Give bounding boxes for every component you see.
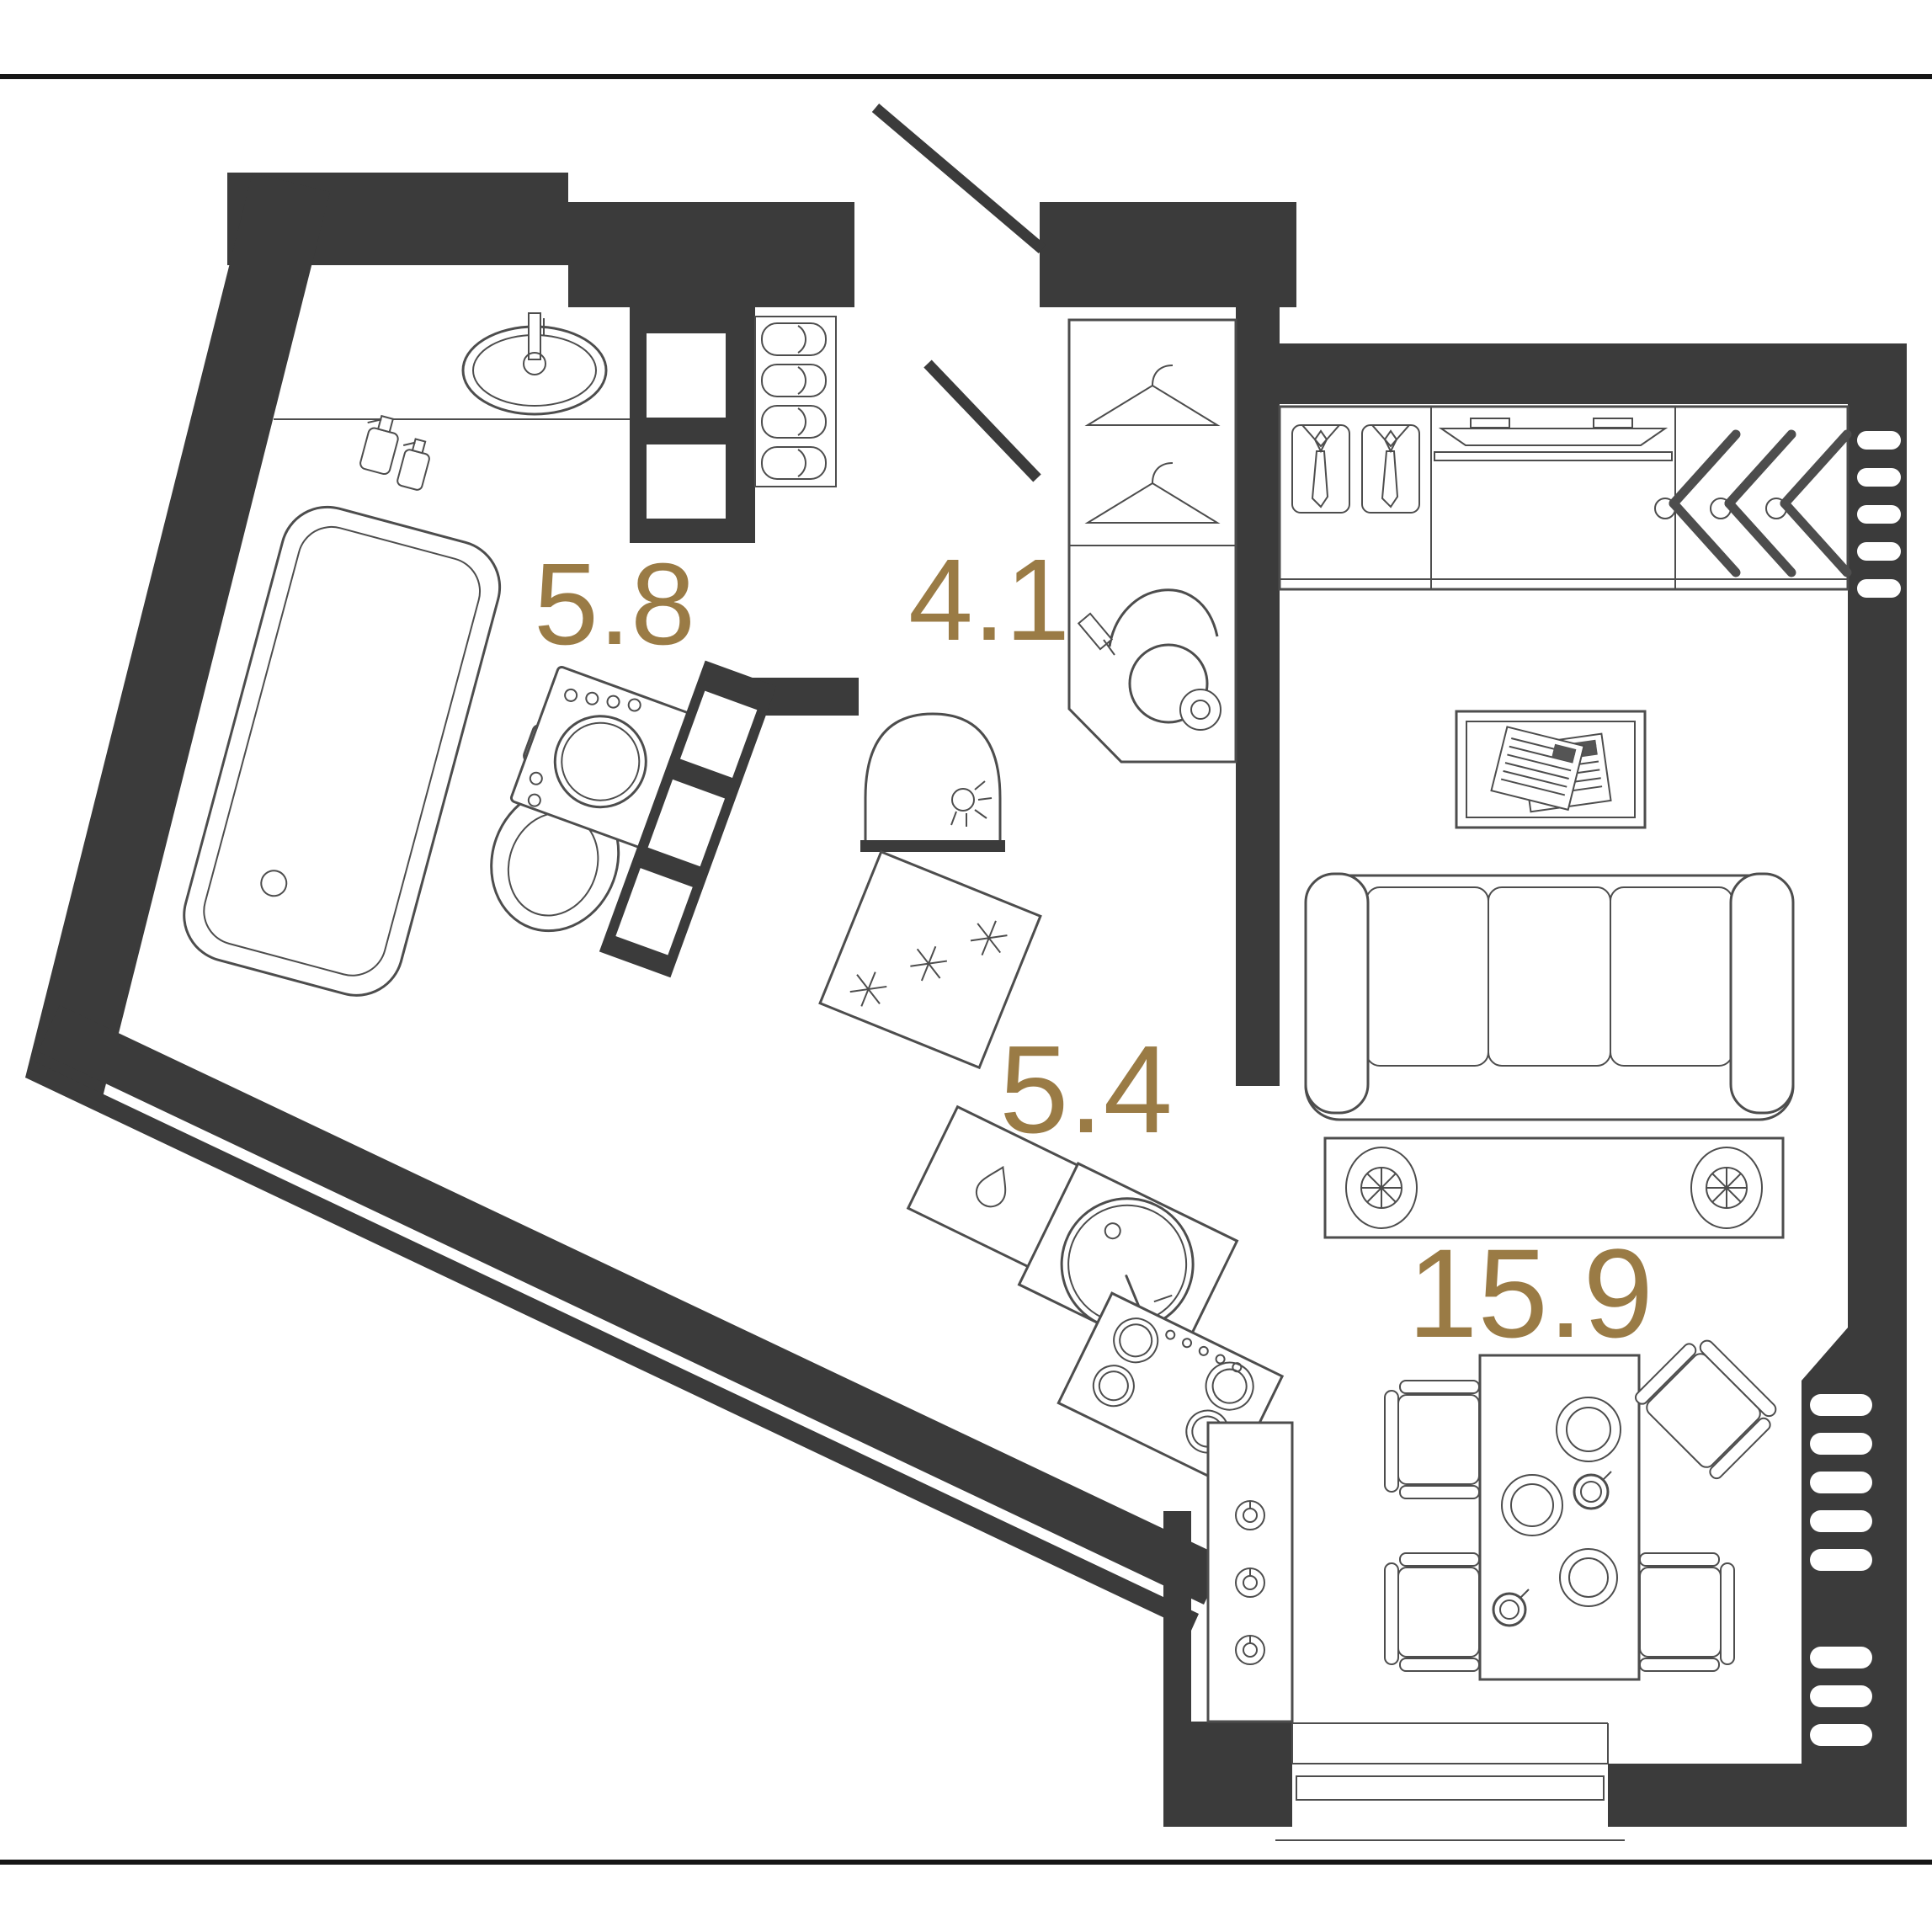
oven-cabinet-icon [1208,1423,1292,1722]
wall-bathroom-top-right [568,202,854,307]
area-label-living: 15.9 [1408,1222,1653,1364]
dining-table-icon [1480,1355,1639,1679]
wall-hall-living-divider [1236,307,1280,1086]
wall-lamp-icon [860,714,1005,852]
wardrobe [1280,407,1848,589]
room-living: 15.9 [1275,407,1848,1840]
slipper-shelf-icon [755,317,836,487]
top-frame-line [0,74,1932,79]
rug-with-magazines-icon [1456,711,1645,828]
sofa-icon [1306,874,1793,1120]
radiator [1810,1394,1872,1746]
wall-living-right [1848,343,1907,1827]
wash-basin-icon [463,313,606,414]
shaft-niche [647,444,726,519]
window [1275,1723,1625,1840]
shaft-niche [647,333,726,418]
wall-bottom-left-of-window [1191,1722,1292,1827]
dining-chair [1385,1381,1479,1498]
wall-bottom-right-of-window [1608,1764,1907,1827]
area-label-kitchen: 5.4 [999,1020,1173,1159]
wall-living-top [1263,343,1907,404]
bottom-frame-line [0,1860,1932,1865]
dining-chair [1385,1553,1479,1671]
hall-closet [1069,320,1236,762]
interior-door [928,364,1037,478]
wall-entry-stub [1040,202,1296,307]
dining-chair [1633,1331,1783,1481]
wall-corner-bar [1163,1511,1191,1827]
dining-chair [1640,1553,1734,1671]
room-kitchen: 5.4 [820,852,1292,1722]
floor-plan-canvas: 5.8 [0,0,1932,1932]
area-label-bathroom: 5.8 [534,540,695,669]
room-hallway: 4.1 [755,317,1236,852]
floor-plan: 5.8 [0,0,1932,1932]
area-label-hallway: 4.1 [908,535,1070,665]
entrance-door [876,108,1042,249]
spray-bottles-icon [354,412,437,491]
